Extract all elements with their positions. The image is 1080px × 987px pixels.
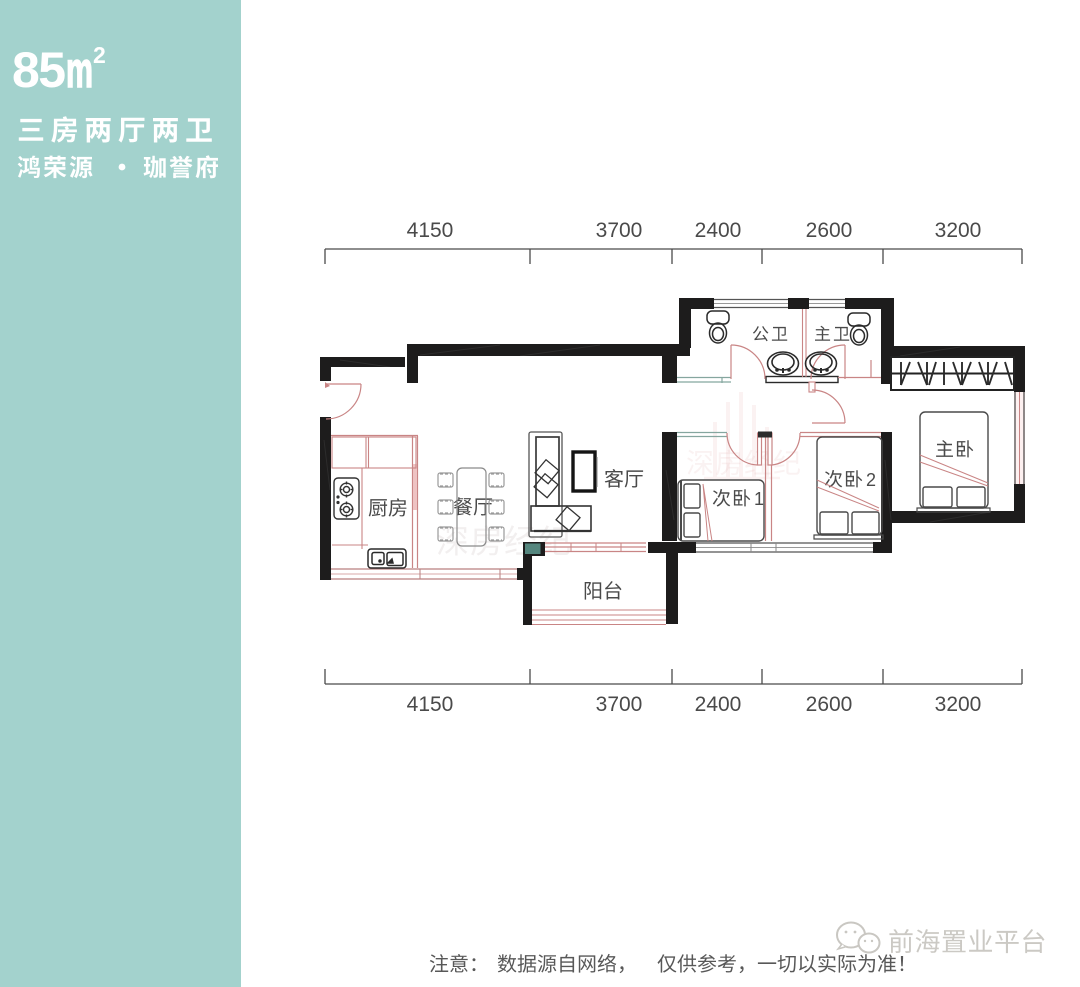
svg-text:3700: 3700 [596,219,643,242]
svg-text:4150: 4150 [407,693,454,716]
svg-text:85: 85 [12,42,66,98]
svg-text:3200: 3200 [935,693,982,716]
svg-text:3200: 3200 [935,219,982,242]
svg-text:2400: 2400 [695,219,742,242]
svg-text:1: 1 [754,489,764,509]
svg-text:m: m [66,42,93,98]
svg-text:2400: 2400 [695,693,742,716]
svg-text:2: 2 [93,42,106,68]
svg-text:2: 2 [866,470,876,490]
svg-text:4150: 4150 [407,219,454,242]
svg-text:3700: 3700 [596,693,643,716]
svg-text:2600: 2600 [806,219,853,242]
svg-text:2600: 2600 [806,693,853,716]
